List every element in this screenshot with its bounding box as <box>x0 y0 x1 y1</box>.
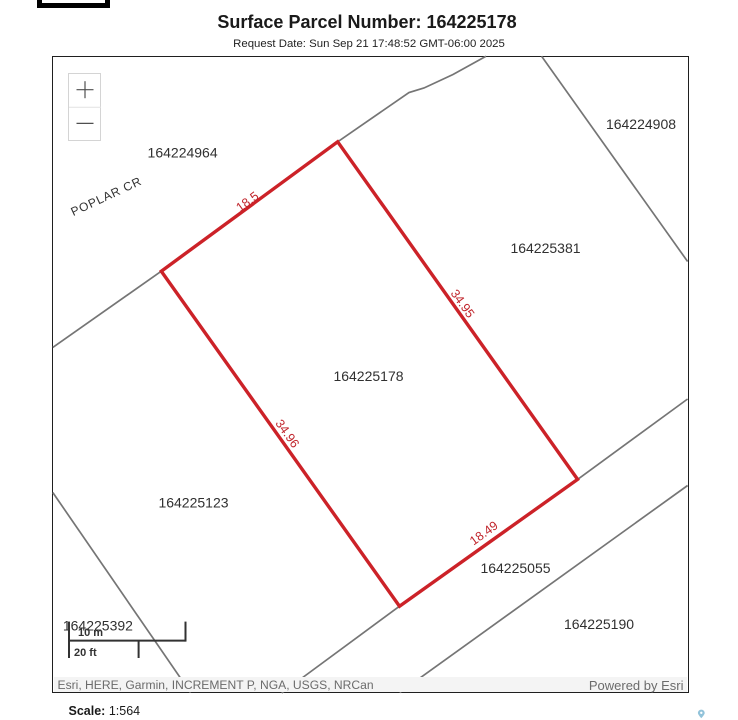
svg-text:18.5: 18.5 <box>233 189 261 215</box>
svg-text:164225190: 164225190 <box>564 616 634 632</box>
svg-text:164225123: 164225123 <box>158 495 228 511</box>
svg-text:164224964: 164224964 <box>148 145 218 161</box>
svg-text:18.49: 18.49 <box>467 518 501 548</box>
svg-text:20 ft: 20 ft <box>74 647 97 659</box>
svg-text:164225055: 164225055 <box>480 560 550 576</box>
svg-text:164225178: 164225178 <box>333 368 403 384</box>
svg-text:10 m: 10 m <box>78 627 103 639</box>
svg-text:164224908: 164224908 <box>606 116 676 132</box>
svg-text:164225381: 164225381 <box>510 240 580 256</box>
svg-text:POPLAR CR: POPLAR CR <box>69 174 144 219</box>
